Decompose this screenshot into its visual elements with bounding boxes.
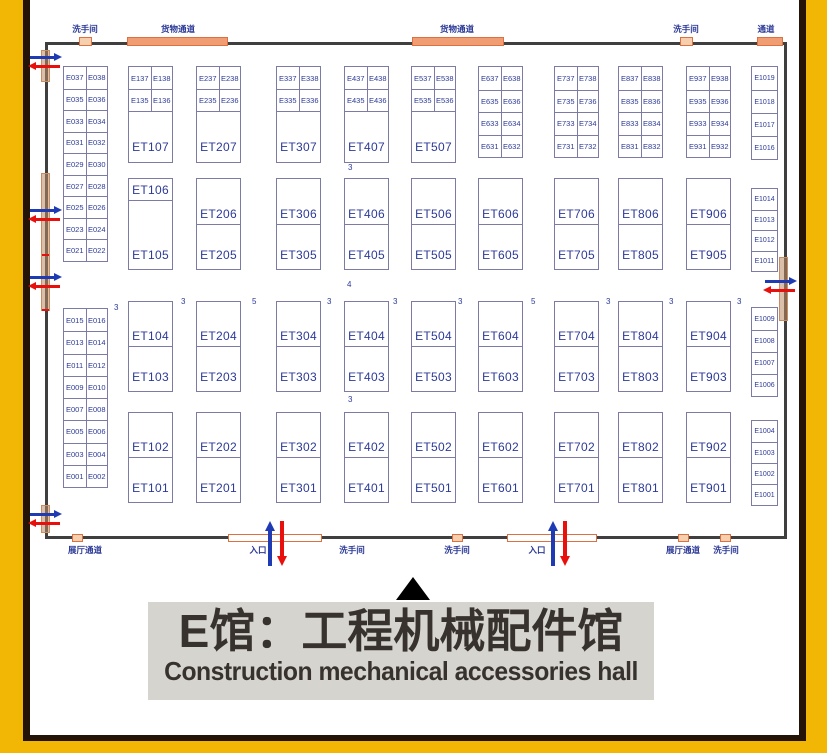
booth-block-top: ET906 — [687, 179, 730, 225]
booth-block-top: ET106 — [129, 179, 172, 201]
booth-label: ET803 — [622, 370, 659, 384]
booth-block-bottom: ET101 — [129, 458, 172, 503]
entry-arrow-right-icon — [28, 206, 62, 215]
booth-label: ET706 — [558, 207, 595, 221]
booth-side-column: E1009E1008E1007E1006 — [751, 307, 778, 397]
booth-label: ET802 — [622, 440, 659, 454]
booth-block: ET702ET701 — [554, 412, 599, 503]
booth-cell: E938 — [709, 67, 731, 90]
booth-block: ET502ET501 — [411, 412, 456, 503]
booth-label: ET201 — [200, 481, 237, 495]
arrow-body — [30, 56, 55, 59]
booth-cell: E933 — [687, 112, 709, 135]
booth-cell: E002 — [86, 465, 108, 487]
booth-cell: E1018 — [752, 90, 777, 113]
arrow-head — [548, 521, 558, 531]
booth-cell: E1012 — [752, 230, 777, 251]
booth-cell: E033 — [64, 110, 86, 132]
booth-block-bottom: ET605 — [479, 225, 522, 269]
booth-cell: E007 — [64, 398, 86, 420]
booth-block-bottom: ET501 — [412, 458, 455, 503]
booth-pair-column: E037E038E035E036E033E034E031E032E029E030… — [63, 66, 108, 262]
booth-block: ET504ET503 — [411, 301, 456, 392]
booth-block-top: ET406 — [345, 179, 388, 225]
booth-cell: E437 — [345, 67, 367, 89]
booth-side-column: E1019E1018E1017E1016 — [751, 66, 778, 160]
aisle-width-number: 3 — [181, 297, 185, 306]
arrow-body — [551, 529, 555, 566]
booth-block-bottom: ET901 — [687, 458, 730, 503]
booth-tower: E237E238E235E236ET207 — [196, 66, 241, 163]
booth-tower-pairs: E337E338E335E336 — [277, 67, 320, 111]
wall-label: 货物通道 — [161, 23, 195, 35]
booth-block: ET904ET903 — [686, 301, 731, 392]
booth-cell: E014 — [86, 331, 108, 353]
booth-cell: E936 — [709, 90, 731, 113]
booth-cell: E1006 — [752, 374, 777, 396]
booth-cell: E015 — [64, 309, 86, 331]
arrow-body — [35, 65, 60, 68]
booth-label: ET402 — [348, 440, 385, 454]
booth-label: ET401 — [348, 481, 385, 495]
booth-block-top: ET606 — [479, 179, 522, 225]
booth-side-column: E1014E1013E1012E1011 — [751, 188, 778, 272]
booth-block: ET202ET201 — [196, 412, 241, 503]
exit-arrow-left-icon — [28, 519, 62, 528]
booth-label: ET901 — [690, 481, 727, 495]
booth-cell: E137 — [129, 67, 151, 89]
wall-label: 洗手间 — [673, 23, 699, 35]
arrow-body — [35, 218, 60, 221]
red-tick-icon — [42, 309, 49, 311]
hall-title-en: Construction mechanical accessories hall — [161, 658, 642, 684]
booth-label: ET502 — [415, 440, 452, 454]
booth-block: ET906ET905 — [686, 178, 731, 270]
entrance-arrow-up-icon — [265, 521, 276, 566]
exit-arrow-left-icon — [763, 286, 797, 295]
booth-large-area: ET407 — [345, 111, 388, 162]
booth-cell: E1003 — [752, 442, 777, 463]
booth-label: ET304 — [280, 329, 317, 343]
booth-tower: E437E438E435E436ET407 — [344, 66, 389, 163]
booth-cell: E831 — [619, 135, 641, 158]
booth-cell: E135 — [129, 89, 151, 111]
aisle-width-number: 3 — [327, 297, 331, 306]
exit-arrow-left-icon — [28, 215, 62, 224]
door-marker — [79, 37, 92, 46]
booth-block-top: ET304 — [277, 302, 320, 347]
booth-label: ET601 — [482, 481, 519, 495]
aisle-width-number: 3 — [458, 297, 462, 306]
booth-label: ET704 — [558, 329, 595, 343]
booth-block-top: ET402 — [345, 413, 388, 458]
booth-label: ET104 — [132, 329, 169, 343]
booth-cell: E336 — [299, 89, 321, 111]
booth-cell: E1013 — [752, 210, 777, 231]
booth-cell: E633 — [479, 112, 501, 135]
booth-label: ET406 — [348, 207, 385, 221]
aisle-width-number: 3 — [348, 395, 352, 404]
booth-pair-column: E637E638E635E636E633E634E631E632 — [478, 66, 523, 158]
booth-block: ET306ET305 — [276, 178, 321, 270]
booth-label: ET307 — [280, 140, 317, 154]
booth-block: ET102ET101 — [128, 412, 173, 503]
booth-label: ET203 — [200, 370, 237, 384]
booth-pair-column: E737E738E735E736E733E734E731E732 — [554, 66, 599, 158]
aisle-width-number: 4 — [347, 280, 351, 289]
booth-tower: E537E538E535E536ET507 — [411, 66, 456, 163]
booth-cell: E022 — [86, 239, 108, 261]
booth-label: ET302 — [280, 440, 317, 454]
booth-cell: E1017 — [752, 113, 777, 136]
booth-cell: E536 — [434, 89, 456, 111]
booth-label: ET301 — [280, 481, 317, 495]
booth-block-bottom: ET201 — [197, 458, 240, 503]
booth-block: ET606ET605 — [478, 178, 523, 270]
booth-label: ET204 — [200, 329, 237, 343]
aisle-width-number: 3 — [669, 297, 673, 306]
hall-title-banner: E馆：工程机械配件馆 Construction mechanical acces… — [148, 602, 654, 700]
booth-cell: E335 — [277, 89, 299, 111]
booth-label: ET105 — [132, 248, 169, 262]
booth-cell: E737 — [555, 67, 577, 90]
booth-block: ET206ET205 — [196, 178, 241, 270]
booth-label: ET103 — [132, 370, 169, 384]
entrance-arrow-up-icon — [548, 521, 559, 566]
booth-cell: E1001 — [752, 484, 777, 505]
booth-pair-column: E837E838E835E836E833E834E831E832 — [618, 66, 663, 158]
booth-block: ET104ET103 — [128, 301, 173, 392]
booth-cell: E025 — [64, 196, 86, 218]
booth-block: ET704ET703 — [554, 301, 599, 392]
booth-cell: E338 — [299, 67, 321, 89]
booth-label: ET701 — [558, 481, 595, 495]
wall-label: 洗手间 — [444, 544, 470, 556]
booth-cell: E012 — [86, 354, 108, 376]
arrow-head — [789, 277, 797, 285]
arrow-head — [28, 215, 36, 223]
door-marker — [680, 37, 693, 46]
booth-cell: E638 — [501, 67, 523, 90]
booth-block-bottom: ET903 — [687, 347, 730, 392]
booth-block: ET602ET601 — [478, 412, 523, 503]
entry-arrow-right-icon — [28, 273, 62, 282]
booth-side-column: E1004E1003E1002E1001 — [751, 420, 778, 506]
booth-cell: E013 — [64, 331, 86, 353]
booth-cell: E637 — [479, 67, 501, 90]
booth-cell: E934 — [709, 112, 731, 135]
booth-cell: E006 — [86, 420, 108, 442]
booth-label: ET501 — [415, 481, 452, 495]
booth-block-top: ET704 — [555, 302, 598, 347]
arrow-head — [54, 53, 62, 61]
booth-cell: E631 — [479, 135, 501, 158]
booth-block: ET604ET603 — [478, 301, 523, 392]
booth-block-bottom: ET205 — [197, 225, 240, 269]
booth-cell: E034 — [86, 110, 108, 132]
booth-cell: E435 — [345, 89, 367, 111]
wall-label: 入口 — [249, 544, 266, 556]
booth-label: ET603 — [482, 370, 519, 384]
booth-block-bottom: ET801 — [619, 458, 662, 503]
booth-label: ET903 — [690, 370, 727, 384]
booth-tower-pairs: E237E238E235E236 — [197, 67, 240, 111]
arrow-head — [54, 273, 62, 281]
booth-block-bottom: ET301 — [277, 458, 320, 503]
booth-block-bottom: ET505 — [412, 225, 455, 269]
entry-arrow-right-icon — [763, 277, 797, 286]
booth-label: ET507 — [415, 140, 452, 154]
arrow-head — [28, 282, 36, 290]
booth-cell: E029 — [64, 153, 86, 175]
booth-cell: E036 — [86, 89, 108, 111]
hall-title-cn: E馆：工程机械配件馆 — [148, 605, 654, 658]
booth-block: ET404ET403 — [344, 301, 389, 392]
booth-label: ET906 — [690, 207, 727, 221]
booth-cell: E004 — [86, 443, 108, 465]
booth-block-bottom: ET703 — [555, 347, 598, 392]
booth-block: ET806ET805 — [618, 178, 663, 270]
door-marker — [72, 534, 83, 542]
booth-cell: E027 — [64, 175, 86, 197]
booth-pair-column: E937E938E935E936E933E934E931E932 — [686, 66, 731, 158]
booth-label: ET703 — [558, 370, 595, 384]
booth-cell: E1016 — [752, 136, 777, 159]
booth-label: ET705 — [558, 248, 595, 262]
entrance-arrow-down-icon — [277, 521, 288, 566]
booth-large-area: ET207 — [197, 111, 240, 162]
booth-cell: E003 — [64, 443, 86, 465]
wall-label: 通道 — [757, 23, 774, 35]
booth-block-top: ET502 — [412, 413, 455, 458]
booth-tower-pairs: E137E138E135E136 — [129, 67, 172, 111]
booth-label: ET504 — [415, 329, 452, 343]
booth-label: ET405 — [348, 248, 385, 262]
booth-block-bottom: ET603 — [479, 347, 522, 392]
aisle-width-number: 3 — [606, 297, 610, 306]
booth-cell: E1014 — [752, 189, 777, 210]
booth-block-top: ET504 — [412, 302, 455, 347]
booth-block-bottom: ET803 — [619, 347, 662, 392]
booth-cell: E028 — [86, 175, 108, 197]
booth-block-top: ET806 — [619, 179, 662, 225]
booth-cell: E023 — [64, 218, 86, 240]
booth-block-bottom: ET705 — [555, 225, 598, 269]
arrow-head — [560, 556, 570, 566]
arrow-body — [280, 521, 284, 558]
booth-cell: E731 — [555, 135, 577, 158]
booth-block-top: ET404 — [345, 302, 388, 347]
door-marker — [678, 534, 689, 542]
booth-cell: E032 — [86, 132, 108, 154]
booth-block-bottom: ET805 — [619, 225, 662, 269]
wall-label: 入口 — [528, 544, 545, 556]
wall-label: 洗手间 — [339, 544, 365, 556]
arrow-body — [35, 522, 60, 525]
booth-tower: E137E138E135E136ET107 — [128, 66, 173, 163]
booth-block-top: ET602 — [479, 413, 522, 458]
booth-label: ET206 — [200, 207, 237, 221]
booth-cell: E1008 — [752, 330, 777, 352]
booth-block-bottom: ET701 — [555, 458, 598, 503]
booth-label: ET905 — [690, 248, 727, 262]
booth-label: ET801 — [622, 481, 659, 495]
arrow-head — [28, 62, 36, 70]
booth-block: ET804ET803 — [618, 301, 663, 392]
booth-cell: E734 — [577, 112, 599, 135]
booth-cell: E237 — [197, 67, 219, 89]
arrow-head — [277, 556, 287, 566]
booth-cell: E833 — [619, 112, 641, 135]
booth-block-top: ET306 — [277, 179, 320, 225]
booth-label: ET902 — [690, 440, 727, 454]
booth-cell: E016 — [86, 309, 108, 331]
wall-label: 展厅通道 — [68, 544, 102, 556]
booth-label: ET505 — [415, 248, 452, 262]
booth-block-bottom: ET905 — [687, 225, 730, 269]
booth-block-top: ET904 — [687, 302, 730, 347]
booth-block-top: ET706 — [555, 179, 598, 225]
booth-block-bottom: ET305 — [277, 225, 320, 269]
booth-cell: E632 — [501, 135, 523, 158]
booth-cell: E037 — [64, 67, 86, 89]
booth-label: ET605 — [482, 248, 519, 262]
booth-cell: E010 — [86, 376, 108, 398]
booth-block: ET706ET705 — [554, 178, 599, 270]
booth-label: ET404 — [348, 329, 385, 343]
booth-large-area: ET107 — [129, 111, 172, 162]
booth-cell: E138 — [151, 67, 173, 89]
arrow-body — [30, 276, 55, 279]
door-marker — [412, 37, 504, 46]
arrow-body — [35, 285, 60, 288]
booth-block: ET304ET303 — [276, 301, 321, 392]
booth-label: ET604 — [482, 329, 519, 343]
booth-block: ET402ET401 — [344, 412, 389, 503]
booth-block-top: ET506 — [412, 179, 455, 225]
aisle-width-number: 5 — [531, 297, 535, 306]
booth-cell: E038 — [86, 67, 108, 89]
booth-large-area: ET307 — [277, 111, 320, 162]
booth-block-top: ET206 — [197, 179, 240, 225]
booth-block-bottom: ET105 — [129, 201, 172, 269]
booth-block-top: ET604 — [479, 302, 522, 347]
door-marker — [127, 37, 228, 46]
booth-block-top: ET302 — [277, 413, 320, 458]
booth-cell: E538 — [434, 67, 456, 89]
wall-label: 货物通道 — [440, 23, 474, 35]
booth-block-top: ET102 — [129, 413, 172, 458]
booth-cell: E535 — [412, 89, 434, 111]
booth-cell: E937 — [687, 67, 709, 90]
booth-block-bottom: ET601 — [479, 458, 522, 503]
booth-cell: E836 — [641, 90, 663, 113]
booth-block: ET204ET203 — [196, 301, 241, 392]
booth-cell: E838 — [641, 67, 663, 90]
booth-cell: E438 — [367, 67, 389, 89]
arrow-body — [563, 521, 567, 558]
booth-cell: E932 — [709, 135, 731, 158]
booth-cell: E636 — [501, 90, 523, 113]
booth-cell: E931 — [687, 135, 709, 158]
booth-block-bottom: ET503 — [412, 347, 455, 392]
wall-label: 洗手间 — [72, 23, 98, 35]
door-marker — [720, 534, 731, 542]
booth-cell: E011 — [64, 354, 86, 376]
booth-cell: E030 — [86, 153, 108, 175]
booth-label: ET602 — [482, 440, 519, 454]
booth-cell: E738 — [577, 67, 599, 90]
booth-label: ET503 — [415, 370, 452, 384]
booth-label: ET303 — [280, 370, 317, 384]
aisle-width-number: 3 — [393, 297, 397, 306]
booth-cell: E834 — [641, 112, 663, 135]
booth-cell: E635 — [479, 90, 501, 113]
booth-block-top: ET104 — [129, 302, 172, 347]
booth-label: ET804 — [622, 329, 659, 343]
aisle-width-number: 5 — [252, 297, 256, 306]
arrow-body — [268, 529, 272, 566]
booth-cell: E001 — [64, 465, 86, 487]
booth-label: ET305 — [280, 248, 317, 262]
booth-cell: E236 — [219, 89, 241, 111]
booth-label: ET306 — [280, 207, 317, 221]
booth-label: ET101 — [132, 481, 169, 495]
booth-cell: E1009 — [752, 308, 777, 330]
door-marker — [757, 37, 783, 46]
booth-large-area: ET507 — [412, 111, 455, 162]
booth-label: ET207 — [200, 140, 237, 154]
booth-cell: E1002 — [752, 463, 777, 484]
booth-cell: E1011 — [752, 251, 777, 272]
red-tick-icon — [42, 254, 49, 256]
booth-block: ET406ET405 — [344, 178, 389, 270]
arrow-head — [265, 521, 275, 531]
booth-label: ET606 — [482, 207, 519, 221]
booth-cell: E005 — [64, 420, 86, 442]
booth-label: ET202 — [200, 440, 237, 454]
booth-block-top: ET802 — [619, 413, 662, 458]
booth-cell: E733 — [555, 112, 577, 135]
booth-cell: E732 — [577, 135, 599, 158]
booth-cell: E1004 — [752, 421, 777, 442]
booth-cell: E024 — [86, 218, 108, 240]
up-triangle-icon — [396, 577, 430, 600]
booth-block: ET506ET505 — [411, 178, 456, 270]
booth-block-bottom: ET103 — [129, 347, 172, 392]
booth-block-bottom: ET303 — [277, 347, 320, 392]
booth-label: ET107 — [132, 140, 169, 154]
entrance-arrow-down-icon — [560, 521, 571, 566]
booth-block-top: ET902 — [687, 413, 730, 458]
booth-label: ET106 — [132, 183, 169, 197]
booth-label: ET407 — [348, 140, 385, 154]
booth-cell: E935 — [687, 90, 709, 113]
entry-arrow-right-icon — [28, 510, 62, 519]
booth-block-top: ET204 — [197, 302, 240, 347]
booth-tower: E337E338E335E336ET307 — [276, 66, 321, 163]
booth-block: ET902ET901 — [686, 412, 731, 503]
booth-cell: E736 — [577, 90, 599, 113]
aisle-width-number: 3 — [114, 303, 118, 312]
entry-arrow-right-icon — [28, 53, 62, 62]
exhibition-hall-floorplan-page: E037E038E035E036E033E034E031E032E029E030… — [0, 0, 827, 753]
exit-arrow-left-icon — [28, 62, 62, 71]
booth-cell: E436 — [367, 89, 389, 111]
arrow-body — [30, 209, 55, 212]
booth-cell: E337 — [277, 67, 299, 89]
arrow-head — [54, 510, 62, 518]
